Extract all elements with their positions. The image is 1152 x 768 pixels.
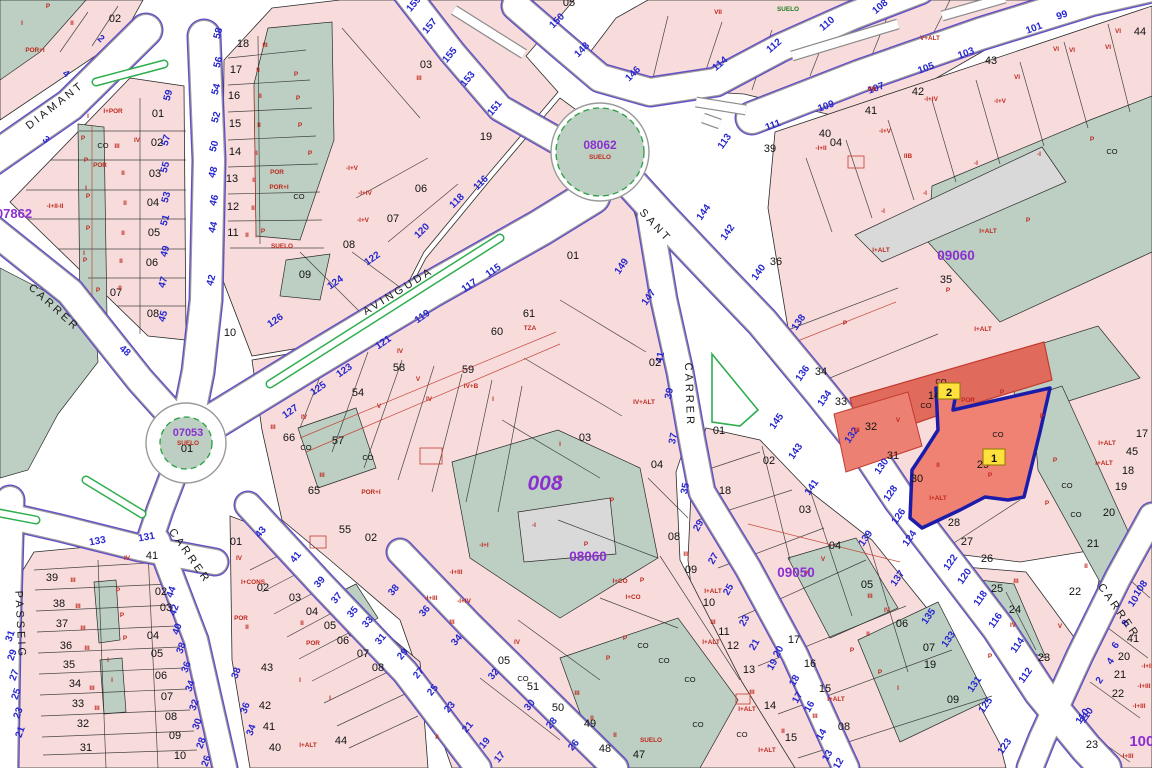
parcel-number: 03 (160, 602, 172, 614)
construction-label: -I+III (1121, 753, 1134, 760)
construction-label: VI (1014, 74, 1020, 81)
construction-label: IV+ALT (633, 399, 655, 406)
construction-label: I+ALT (299, 742, 317, 749)
construction-label: III (749, 689, 755, 696)
parcel-number: 31 (80, 742, 92, 754)
construction-label: III (812, 713, 818, 720)
construction-label: V (1058, 623, 1063, 630)
parcel-number: 58 (393, 362, 405, 374)
block-code: 08062 (583, 138, 617, 152)
road-marking (703, 118, 720, 124)
construction-label: VI (1053, 46, 1059, 53)
construction-label: II (70, 20, 74, 27)
block-code: 1006 (1129, 733, 1152, 750)
construction-label: -I+III (450, 569, 463, 576)
construction-label: P (81, 135, 86, 142)
parcel-number: 42 (259, 700, 271, 712)
courtyard-label: CO (300, 443, 311, 452)
parcel-number: 04 (830, 137, 842, 149)
construction-label: P (86, 225, 91, 232)
construction-label: POR (306, 640, 320, 647)
construction-label: IV (514, 639, 521, 646)
parcel-number: 12 (227, 201, 239, 213)
construction-label: I (897, 685, 899, 692)
construction-label: II (590, 715, 594, 722)
construction-label: II (781, 728, 785, 735)
construction-label: POR (270, 169, 284, 176)
construction-label: II (613, 732, 617, 739)
construction-label: IV (426, 396, 433, 403)
parcel-number: 25 (991, 583, 1003, 595)
construction-label: P (116, 587, 121, 594)
construction-label: VII (714, 9, 722, 16)
courtyard-label: CO (1070, 510, 1081, 519)
construction-label: POR+I (25, 47, 45, 54)
construction-label: I (87, 113, 89, 120)
construction-label: P (261, 228, 266, 235)
parcel-number: 33 (835, 396, 847, 408)
parcel-number: 41 (865, 105, 877, 117)
construction-label: III (1013, 578, 1019, 585)
construction-label: -I (974, 160, 978, 167)
parcel-number: 02 (109, 13, 121, 25)
parcel-number: 08 (165, 711, 177, 723)
construction-label: P (946, 287, 951, 294)
parcel-number: 09 (685, 564, 697, 576)
construction-label: -I+IV (457, 598, 471, 605)
construction-label: IV (1010, 622, 1017, 629)
courtyard-label: CO (920, 401, 931, 410)
parcel-number: 07 (161, 691, 173, 703)
construction-label: P (1090, 136, 1095, 143)
construction-label: -I (1037, 151, 1041, 158)
courtyard-label: CO (684, 675, 695, 684)
construction-label: I+ALT (702, 639, 720, 646)
construction-label: P (296, 95, 301, 102)
construction-label: P (1053, 457, 1058, 464)
construction-label: III (270, 424, 276, 431)
construction-label: III (75, 603, 81, 610)
map-viewport[interactable]: 2435957555351494745585654525048464442481… (0, 0, 1152, 768)
parcel-number: 16 (804, 658, 816, 670)
construction-label: III (683, 551, 689, 558)
courtyard-label: CO (517, 674, 528, 683)
parcel-number: 21 (1087, 538, 1099, 550)
block-code: 07053 (173, 427, 204, 439)
parcel-number: 15 (229, 118, 241, 130)
construction-label: I+CO (625, 594, 640, 601)
block-code: 09060 (937, 248, 975, 263)
parcel-number: 65 (308, 485, 320, 497)
construction-label: III (84, 645, 90, 652)
parcel-number: 14 (229, 146, 241, 158)
parcel-number: 02 (763, 455, 775, 467)
parcel-number: 18 (719, 485, 731, 497)
parcel-number: 35 (940, 274, 952, 286)
construction-label: I+ALT (929, 495, 947, 502)
construction-label: -I (532, 522, 536, 529)
construction-label: III (854, 427, 860, 434)
parcel-number: 22 (1112, 688, 1124, 700)
courtyard-label: CO (97, 141, 108, 150)
construction-label: V (821, 556, 826, 563)
parcel-number: 34 (69, 678, 81, 690)
parcel-number: 07 (387, 213, 399, 225)
parcel-number: 50 (552, 702, 564, 714)
construction-label: II (257, 122, 261, 129)
construction-label: I (559, 441, 561, 448)
construction-label: I+ALT (704, 588, 722, 595)
construction-label: III (89, 685, 95, 692)
construction-label: IV (301, 414, 308, 421)
parcel-number: 48 (599, 743, 611, 755)
construction-label: I+ALT (872, 247, 890, 254)
parcel-number: 05 (861, 579, 873, 591)
construction-label: P (623, 635, 628, 642)
courtyard-label: CO (736, 730, 747, 739)
construction-label: P (878, 669, 883, 676)
construction-label: P (1026, 217, 1031, 224)
construction-label: -I+III (1138, 683, 1151, 690)
parcel-number: 04 (829, 540, 841, 552)
construction-label: II (254, 150, 258, 157)
parcel-number: 01 (230, 536, 242, 548)
parcel-number: 01 (152, 108, 164, 120)
parcel-number: 26 (981, 553, 993, 565)
parcel-number: 03 (289, 592, 301, 604)
parcel-number: 08 (668, 531, 680, 543)
parcel-number: 24 (1009, 604, 1021, 616)
construction-label: TZA (524, 325, 537, 332)
construction-label: -I+IV (924, 96, 938, 103)
parcel-number: 43 (985, 55, 997, 67)
parcel-number: 09 (169, 730, 181, 742)
parcel-number: 18 (1122, 465, 1134, 477)
construction-label: III (416, 75, 422, 82)
construction-label: IV (397, 348, 404, 355)
construction-label: P (298, 122, 303, 129)
construction-label: VI (1105, 44, 1111, 51)
parcel-number: 51 (527, 681, 539, 693)
parcel-number: 04 (306, 606, 318, 618)
parcel-number: 10 (224, 327, 236, 339)
construction-label: P (606, 655, 611, 662)
parcel-number: 47 (633, 749, 645, 761)
cadastral-map: 2435957555351494745585654525048464442481… (0, 0, 1152, 768)
parcel-number: 59 (462, 364, 474, 376)
land-label: SUELO (777, 6, 799, 13)
construction-label: -I+II (815, 145, 826, 152)
construction-label: VB (868, 86, 877, 93)
construction-label: IV (884, 607, 891, 614)
construction-label: P (84, 157, 89, 164)
construction-label: -I+IV (358, 190, 372, 197)
construction-label: I (85, 185, 87, 192)
construction-label: III (94, 705, 100, 712)
parcel-number: 19 (480, 131, 492, 143)
construction-label: SUELO (177, 440, 199, 447)
parcel-number: 44 (1134, 26, 1146, 38)
construction-label: II (123, 200, 127, 207)
parcel-number: 42 (912, 86, 924, 98)
parcel-number: 41 (146, 550, 158, 562)
courtyard-label: CO (1061, 481, 1072, 490)
construction-label: P (988, 653, 993, 660)
parcel-number: 04 (147, 630, 159, 642)
parcel-number: 13 (743, 664, 755, 676)
courtyard-label: CO (1106, 147, 1117, 156)
parcel-number: 06 (896, 618, 908, 630)
parcel-number: 35 (63, 659, 75, 671)
parcel-number: 17 (230, 64, 242, 76)
construction-label: -I+I (479, 542, 489, 549)
parcel-number: 28 (948, 517, 960, 529)
construction-label: IV (236, 555, 243, 562)
construction-label: II (119, 258, 123, 265)
parcel-number: 14 (764, 700, 776, 712)
construction-label: I+ALT (979, 228, 997, 235)
construction-label: P (83, 257, 88, 264)
courtyard-label: CO (362, 453, 373, 462)
construction-label: II (300, 620, 304, 627)
construction-label: -I+III (1133, 703, 1146, 710)
parcel-number: 02 (155, 586, 167, 598)
parcel-number: 19 (924, 659, 936, 671)
construction-label: III (449, 619, 455, 626)
parcel-number: 06 (146, 257, 158, 269)
block-code: 08060 (569, 549, 607, 564)
construction-label: P (610, 497, 615, 504)
construction-label: I+ALT (827, 696, 845, 703)
construction-label: I+ALT (1098, 440, 1116, 447)
construction-label: -I (881, 208, 885, 215)
parcel-number: 08 (372, 662, 384, 674)
roundabout-green (556, 108, 644, 196)
construction-label: V+ALT (920, 35, 940, 42)
parcel-number: 33 (72, 698, 84, 710)
construction-label: I+CO (612, 578, 627, 585)
construction-label: P (294, 71, 299, 78)
parcel-number: 03 (799, 504, 811, 516)
parcel-number: 21 (1114, 669, 1126, 681)
construction-label: I (492, 396, 494, 403)
parcel-number: 13 (226, 173, 238, 185)
street-name: CARRER (682, 362, 696, 427)
construction-label: III (262, 42, 268, 49)
construction-label: I+ALT (738, 706, 756, 713)
parcel-number: 03 (149, 168, 161, 180)
construction-label: -I (923, 190, 927, 197)
parcel-number: 34 (815, 366, 827, 378)
parcel-number: 17 (1136, 428, 1148, 440)
parcel-number: 01 (567, 250, 579, 262)
courtyard-label: CO (293, 192, 304, 201)
construction-label: III (319, 472, 325, 479)
construction-label: P (584, 541, 589, 548)
construction-label: P (1045, 500, 1050, 507)
parcel-number: 66 (283, 432, 295, 444)
construction-label: III (114, 143, 120, 150)
construction-label: II (121, 170, 125, 177)
courtyard-label: CO (692, 720, 703, 729)
construction-label: -I+V (994, 98, 1007, 105)
parcel-number: 27 (961, 536, 973, 548)
parcel-number: 01 (713, 425, 725, 437)
block-code: 09050 (777, 565, 815, 580)
parcel-number: 41 (263, 721, 275, 733)
parcel-number: 17 (788, 634, 800, 646)
construction-label: II (245, 232, 249, 239)
parcel-number: 05 (324, 620, 336, 632)
parcel-number: 15 (785, 732, 797, 744)
construction-label: P (46, 3, 51, 10)
construction-label: -I+V (357, 217, 370, 224)
construction-label: -I+II (1141, 663, 1152, 670)
parcel-number: 03 (420, 59, 432, 71)
parcel-number: 09 (299, 269, 311, 281)
parcel-number: 06 (337, 635, 349, 647)
construction-label: -I+II-II (47, 203, 64, 210)
parcel-number: 16 (228, 90, 240, 102)
construction-label: IV (124, 555, 131, 562)
construction-label: POR (961, 397, 975, 404)
parcel-number: 04 (651, 459, 663, 471)
courtyard-label: CO (992, 430, 1003, 439)
construction-label: II (252, 177, 256, 184)
parcel-number: 09 (947, 694, 959, 706)
parcel-number: 05 (151, 648, 163, 660)
construction-label: I+ALT (1095, 460, 1113, 467)
parcel-number: 03 (579, 432, 591, 444)
construction-label: I (21, 20, 23, 27)
construction-label: II (258, 93, 262, 100)
parcel-number: 12 (727, 640, 739, 652)
construction-label: V (377, 403, 382, 410)
parcel-number: 02 (649, 357, 661, 369)
construction-label: P (120, 612, 125, 619)
construction-label: -I+III (425, 595, 438, 602)
parcel-number: 44 (335, 735, 347, 747)
parcel-number: 07 (357, 648, 369, 660)
parcel-number: 45 (1126, 446, 1138, 458)
construction-label: P (1000, 389, 1005, 396)
parcel-number: 05 (148, 227, 160, 239)
badge-number: 2 (946, 387, 952, 399)
construction-label: -I+V (346, 165, 359, 172)
parcel-number: 23 (1038, 652, 1050, 664)
construction-label: II (118, 285, 122, 292)
parcel-number: 36 (770, 256, 782, 268)
parcel-number: 20 (1118, 651, 1130, 663)
parcel-number: 37 (56, 618, 68, 630)
construction-label: III (70, 577, 76, 584)
parcel-number: 38 (53, 598, 65, 610)
construction-label: I (111, 677, 113, 684)
highlight-badge-2[interactable]: 2 (938, 383, 960, 399)
parcel-number: 39 (46, 572, 58, 584)
parcel-number: 02 (151, 137, 163, 149)
construction-label: P (843, 320, 848, 327)
construction-label: -I+V (879, 128, 892, 135)
courtyard-label: CO (658, 656, 669, 665)
parcel-number: 57 (332, 435, 344, 447)
parcel-number: 06 (415, 183, 427, 195)
construction-label: I (299, 677, 301, 684)
parcel-number: 39 (764, 143, 776, 155)
parcel-number: 32 (77, 718, 89, 730)
parcel-number: 08 (343, 239, 355, 251)
construction-label: III (574, 690, 580, 697)
parcel-number: 10 (174, 750, 186, 762)
parcel-number: 55 (339, 524, 351, 536)
construction-label: III (80, 625, 86, 632)
parcel-number: 23 (1086, 739, 1098, 751)
parcel-number: 40 (269, 742, 281, 754)
construction-label: III (867, 593, 873, 600)
parcel-number: 36 (60, 640, 72, 652)
construction-label: POR (234, 615, 248, 622)
construction-label: V (416, 376, 421, 383)
parcel-number: 20 (1103, 507, 1115, 519)
construction-label: P (850, 647, 855, 654)
construction-label: I+POR (103, 108, 123, 115)
construction-label: SUELO (271, 243, 293, 250)
construction-label: POR (93, 162, 107, 169)
construction-label: III (710, 619, 716, 626)
construction-label: II (245, 624, 249, 631)
construction-label: VI (1115, 28, 1121, 35)
parcel-number: 05 (563, 0, 575, 9)
parcel-number: 11 (718, 626, 729, 638)
construction-label: II (121, 230, 125, 237)
parcel-number: 61 (523, 308, 535, 320)
construction-label: I (83, 250, 85, 257)
courtyard-label: CO (637, 641, 648, 650)
construction-label: P (988, 472, 993, 479)
parcel-number: 11 (227, 227, 238, 239)
construction-label: I (107, 657, 109, 664)
block-code: 008 (527, 472, 562, 495)
construction-label: I+ALT (974, 326, 992, 333)
parcel-number: 06 (155, 670, 167, 682)
parcel-number: 19 (1115, 481, 1127, 493)
construction-label: II (866, 631, 870, 638)
parcel-number: 30 (911, 473, 923, 485)
construction-label: P (1040, 413, 1045, 420)
construction-label: II (1084, 563, 1088, 570)
construction-label: I+CONS (241, 579, 266, 586)
parcel-number: 18 (237, 38, 249, 50)
construction-label: POR+I (361, 489, 381, 496)
construction-label: IIB (904, 153, 913, 160)
highlight-badge-1[interactable]: 1 (983, 449, 1005, 465)
construction-label: POR+I (269, 184, 289, 191)
parcel-number: 43 (261, 662, 273, 674)
construction-label: IV+B (464, 383, 479, 390)
construction-label: I+ALT (758, 747, 776, 754)
construction-label: P (96, 287, 101, 294)
construction-label: II (936, 462, 940, 469)
parcel-number: 32 (865, 421, 877, 433)
construction-label: P (640, 577, 645, 584)
parcel-number: 08 (838, 721, 850, 733)
construction-label: P (308, 150, 313, 157)
parcel-number: 15 (819, 683, 831, 695)
parcel-number: 54 (352, 387, 364, 399)
construction-label: P (123, 635, 128, 642)
parcel-number: 05 (498, 655, 510, 667)
construction-label: I (329, 695, 331, 702)
